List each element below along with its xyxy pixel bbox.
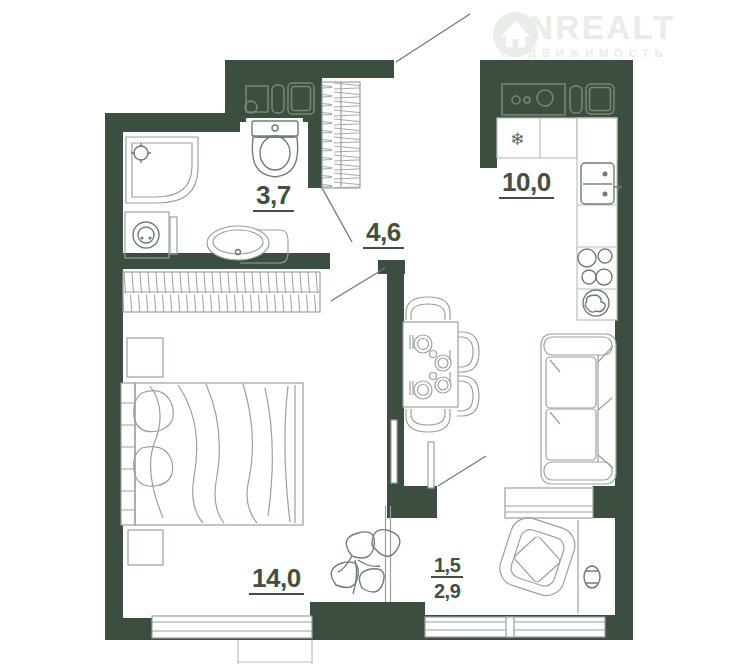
sofa [541, 334, 616, 484]
area-label-balcony-total: 2,9 [431, 581, 463, 602]
area-label-balcony-counted: 1,5 [431, 555, 463, 578]
bed [121, 383, 303, 525]
nightstand-top [127, 338, 163, 377]
floorplan: ONREALT НЕДВИЖИМОСТЬ [0, 0, 741, 664]
bedroom-wardrobe [123, 272, 320, 312]
area-label-kitchen: 10,0 [499, 169, 554, 199]
corner-shower [126, 137, 198, 203]
living-balcony-window [505, 488, 593, 518]
area-label-bedroom: 14,0 [249, 565, 304, 595]
plant [331, 530, 400, 594]
bathroom-door [322, 188, 352, 242]
flower-pot [584, 566, 600, 588]
hall-wardrobe [322, 82, 360, 188]
area-label-hallway: 4,6 [363, 219, 404, 249]
balcony-window [425, 617, 605, 637]
bedroom-balcony-partition [386, 506, 391, 602]
toilet [246, 118, 303, 177]
balcony-door [428, 442, 486, 488]
armchair [495, 513, 579, 600]
nightstand-bottom [128, 530, 163, 565]
area-label-bathroom: 3,7 [253, 182, 294, 212]
fridge: ❄ [510, 130, 524, 149]
snowflake-icon: ❄ [510, 130, 524, 149]
entrance-door [396, 14, 470, 62]
washing-machine [125, 212, 177, 258]
lower-balcony-outline [238, 640, 312, 664]
bedroom-window [152, 616, 312, 638]
